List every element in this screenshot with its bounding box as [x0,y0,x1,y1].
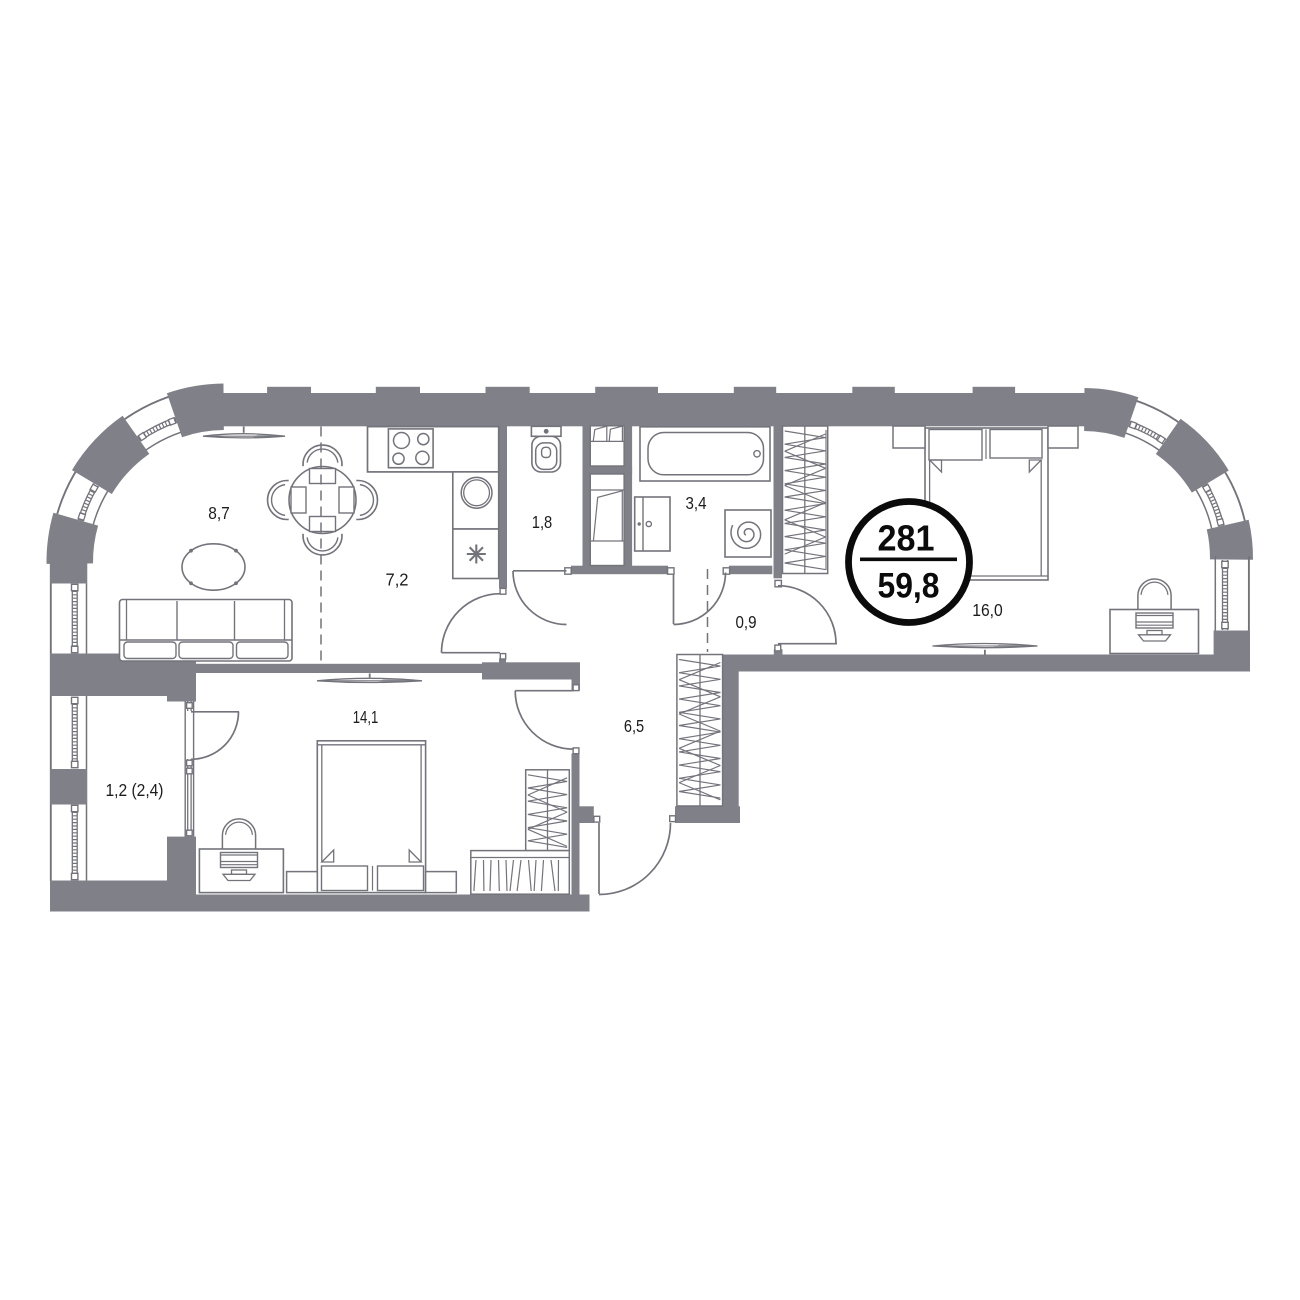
svg-text:16,0: 16,0 [972,600,1003,620]
svg-text:0,9: 0,9 [736,612,757,632]
svg-text:6,5: 6,5 [624,716,644,736]
svg-text:14,1: 14,1 [353,707,379,727]
svg-text:7,2: 7,2 [386,570,409,590]
svg-text:1,8: 1,8 [532,512,553,532]
svg-text:281: 281 [878,518,935,559]
svg-text:3,4: 3,4 [686,493,707,513]
svg-text:59,8: 59,8 [878,566,940,606]
svg-text:8,7: 8,7 [208,503,230,523]
svg-text:1,2 (2,4): 1,2 (2,4) [106,780,164,800]
